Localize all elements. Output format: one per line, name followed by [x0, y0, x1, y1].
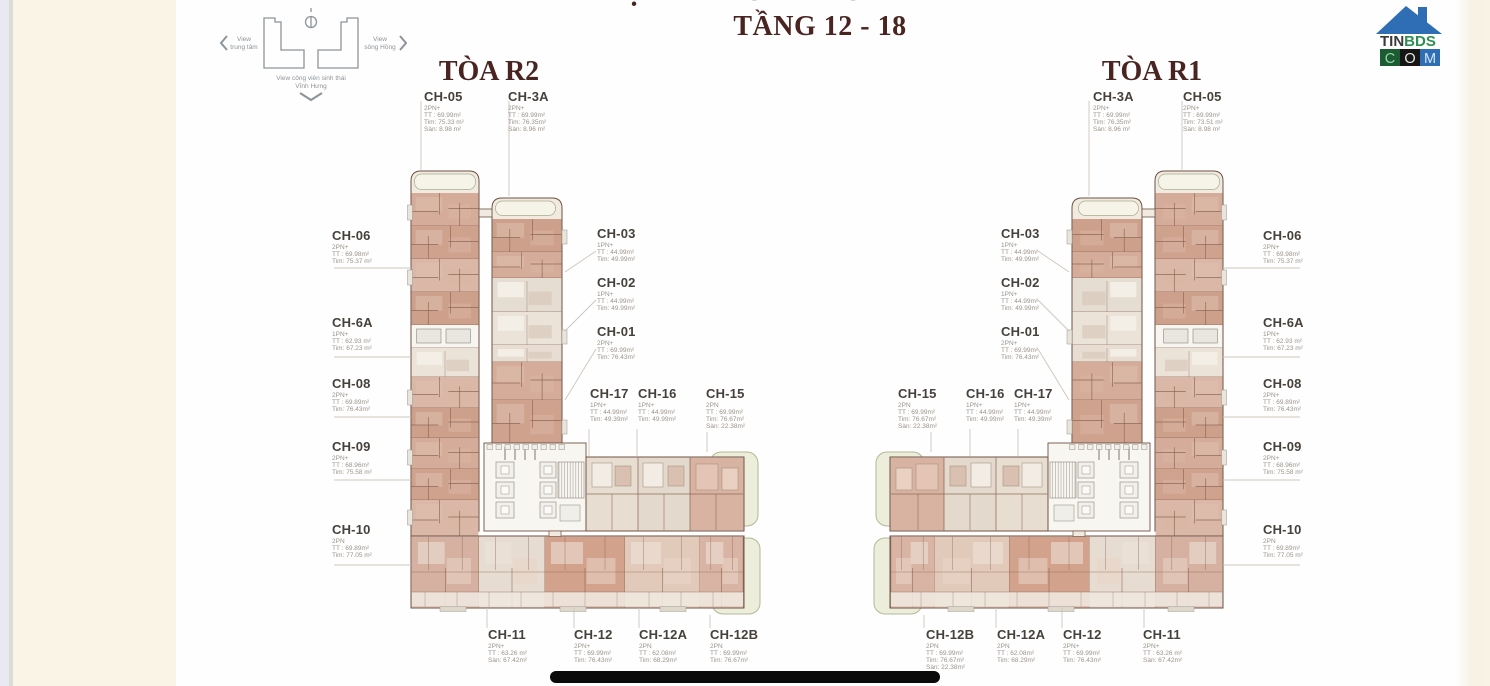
svg-text:TINBDS: TINBDS [1380, 33, 1436, 50]
svg-text:C: C [1385, 51, 1395, 67]
svg-text:M: M [1424, 51, 1436, 67]
svg-text:O: O [1404, 51, 1415, 67]
